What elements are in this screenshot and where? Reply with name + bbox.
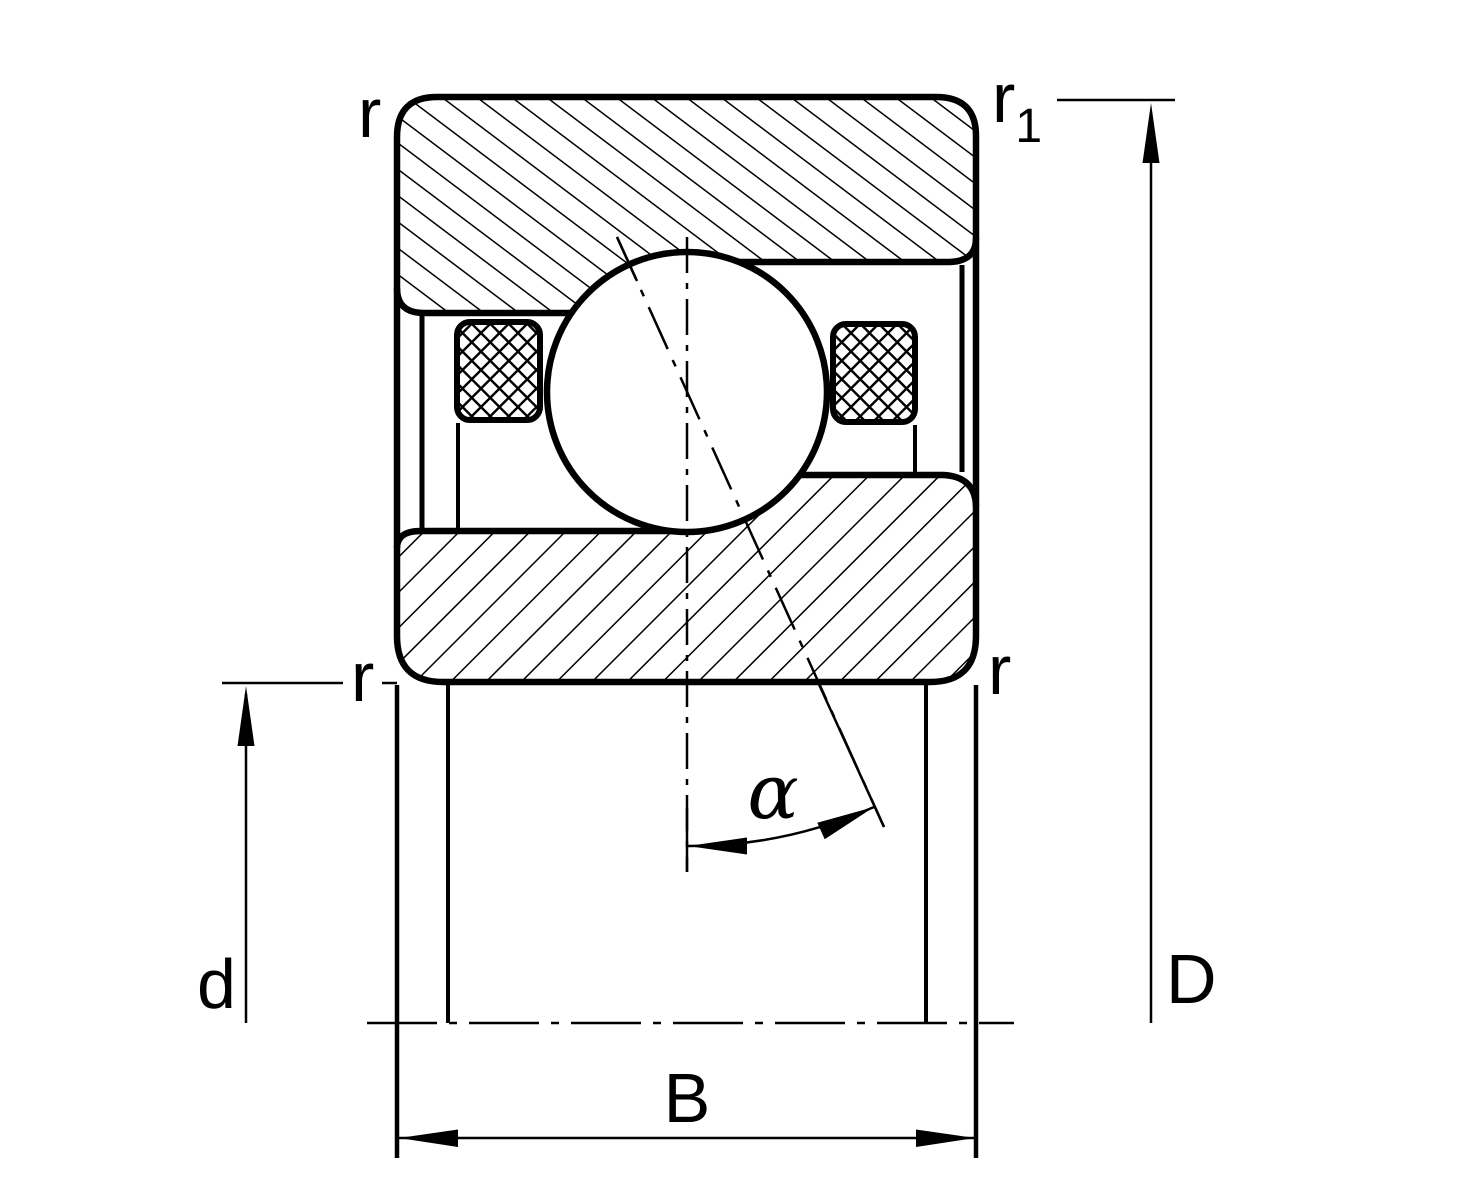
label-r-top-left: r: [358, 74, 381, 152]
seal-right: [833, 324, 915, 422]
label-B: B: [664, 1059, 711, 1137]
label-D: D: [1166, 940, 1217, 1018]
label-r-mid-right: r: [988, 631, 1011, 709]
seal-left: [457, 322, 540, 420]
label-alpha: α: [747, 747, 798, 836]
label-r-mid-left: r: [351, 638, 374, 716]
diagram-canvas: r r1 r r d D B α: [0, 0, 1466, 1200]
bearing-cross-section-diagram: r r1 r r d D B α: [0, 0, 1466, 1200]
label-d: d: [197, 945, 236, 1023]
